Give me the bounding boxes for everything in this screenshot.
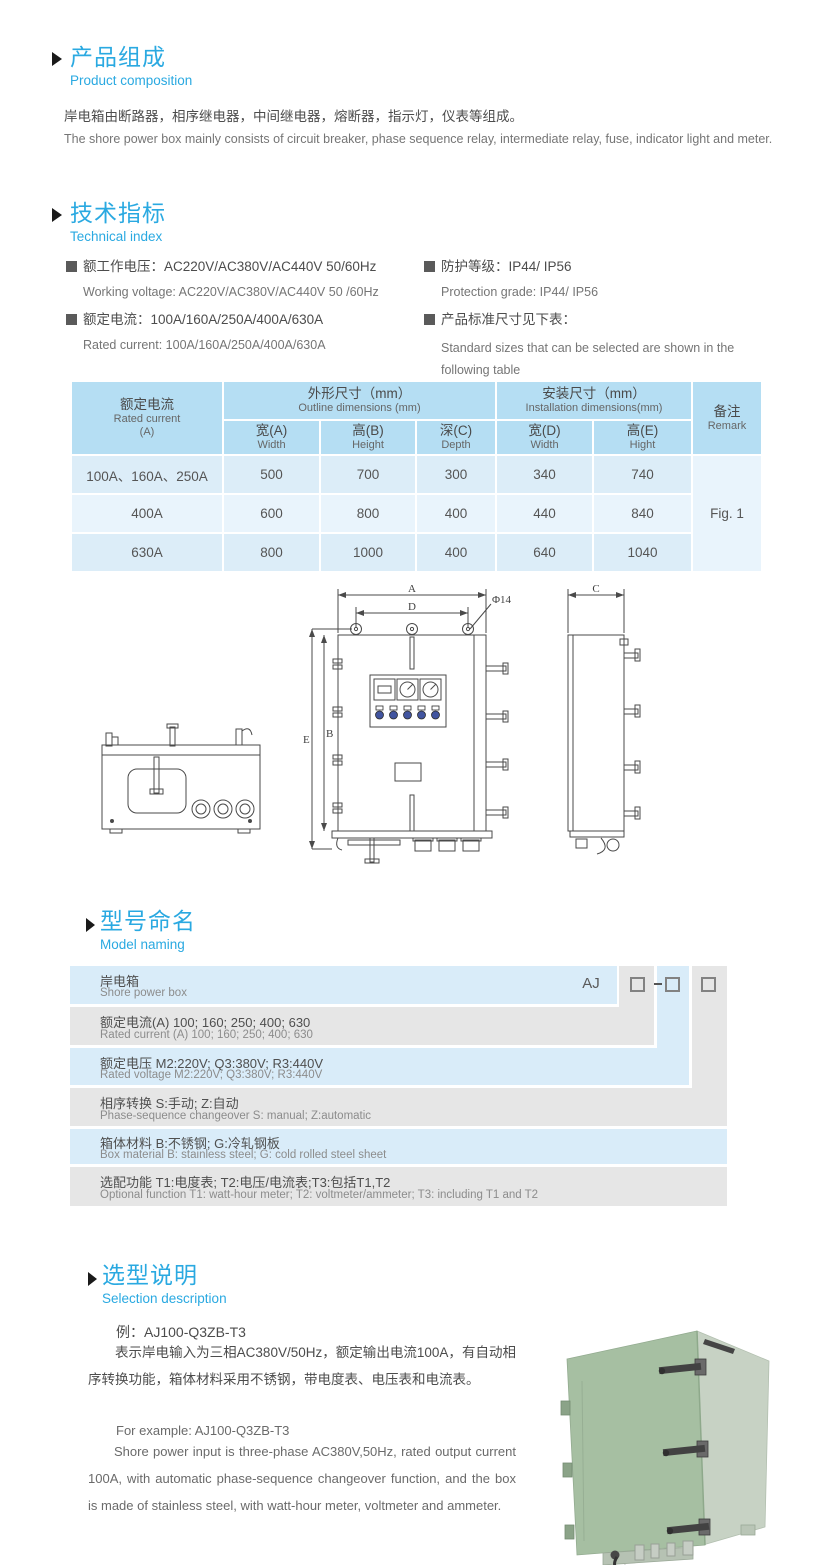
square-bullet-icon [424, 314, 435, 325]
size-table-wrap: 额定电流 Rated current (A) 外形尺寸（mm） Outline … [70, 380, 763, 573]
cell-current: 630A [72, 534, 222, 571]
composition-title-en: Product composition [70, 73, 192, 88]
tech-item: 防护等级：IP44/ IP56 [424, 258, 772, 276]
col-header-depth-c: 深(C)Depth [417, 421, 495, 454]
latch-marks [486, 663, 508, 818]
bottom-view [102, 724, 260, 833]
dim-e-label: E [303, 734, 310, 746]
technical-heading: 技术指标 Technical index [70, 200, 166, 244]
composition-body-en: The shore power box mainly consists of c… [64, 132, 774, 146]
technical-bullets-right: 防护等级：IP44/ IP56 Protection grade: IP44/ … [424, 258, 772, 391]
model-naming-diagram: AJ 岸电箱 Shore power box 额定电流(A) 100; 160;… [70, 966, 730, 1211]
model-row-en: Rated current (A) 100; 160; 250; 400; 63… [100, 1029, 313, 1041]
model-heading: 型号命名 Model naming [100, 908, 196, 952]
col-header-height-b: 高(B)Height [321, 421, 415, 454]
model-code-prefix: AJ [568, 975, 614, 992]
model-row-en: Box material B: stainless steel; G: cold… [100, 1149, 386, 1161]
tech-item: 额工作电压：AC220V/AC380V/AC440V 50/60Hz [66, 258, 416, 276]
square-bullet-icon [66, 314, 77, 325]
cell: 800 [224, 534, 319, 571]
cell: 600 [224, 495, 319, 532]
selection-heading: 选型说明 Selection description [102, 1262, 227, 1306]
cell-current: 400A [72, 495, 222, 532]
model-code-box [630, 977, 645, 992]
technical-bullets-left: 额工作电压：AC220V/AC380V/AC440V 50/60Hz Worki… [66, 258, 416, 364]
square-bullet-icon [66, 261, 77, 272]
cell: 840 [594, 495, 691, 532]
tech-item: 额定电流：100A/160A/250A/400A/630A [66, 311, 416, 329]
dim-d-label: D [408, 601, 416, 613]
cell-remark: Fig. 1 [693, 456, 761, 571]
dim-c-label: C [592, 583, 599, 595]
tech-item-en: Protection grade: IP44/ IP56 [441, 284, 772, 301]
tech-item: 产品标准尺寸见下表： [424, 311, 772, 329]
composition-body-cn: 岸电箱由断路器，相序继电器，中间继电器，熔断器，指示灯，仪表等组成。 [64, 105, 774, 125]
selection-body-en: Shore power input is three-phase AC380V,… [88, 1438, 516, 1519]
col-header-hight-e: 高(E)Hight [594, 421, 691, 454]
model-code-box [665, 977, 680, 992]
model-row-en: Shore power box [100, 987, 187, 999]
tech-item-en: Working voltage: AC220V/AC380V/AC440V 50… [83, 284, 416, 301]
cell: 740 [594, 456, 691, 493]
col-group-outline: 外形尺寸（mm） Outline dimensions (mm) [224, 382, 495, 419]
col-header-current: 额定电流 Rated current (A) [72, 382, 222, 454]
technical-title-en: Technical index [70, 229, 166, 244]
model-row-en: Optional function T1: watt-hour meter; T… [100, 1189, 538, 1201]
cell: 700 [321, 456, 415, 493]
side-view [568, 589, 640, 854]
dimension-labels: A D Φ14 E B C [303, 583, 600, 746]
cell: 800 [321, 495, 415, 532]
selection-example-en: For example: AJ100-Q3ZB-T3 [116, 1423, 289, 1438]
selection-title-en: Selection description [102, 1291, 227, 1306]
size-table: 额定电流 Rated current (A) 外形尺寸（mm） Outline … [70, 380, 763, 573]
table-row: 100A、160A、250A 500 700 300 340 740 Fig. … [72, 456, 761, 493]
meter-panel [370, 675, 446, 727]
hole-label: Φ14 [492, 594, 512, 606]
cell: 640 [497, 534, 592, 571]
cell: 1000 [321, 534, 415, 571]
technical-arrow-icon [52, 208, 62, 227]
col-group-install: 安装尺寸（mm） Installation dimensions(mm) [497, 382, 691, 419]
cell-current: 100A、160A、250A [72, 456, 222, 493]
cell: 400 [417, 534, 495, 571]
cell: 440 [497, 495, 592, 532]
model-arrow-icon [86, 918, 95, 937]
dim-a-label: A [408, 583, 416, 595]
col-header-remark: 备注 Remark [693, 382, 761, 454]
side-latches [624, 649, 640, 819]
cell: 400 [417, 495, 495, 532]
selection-arrow-icon [88, 1272, 97, 1291]
technical-drawing: A D Φ14 E B C [70, 583, 770, 883]
col-header-width-a: 宽(A)Width [224, 421, 319, 454]
tech-item-en: Rated current: 100A/160A/250A/400A/630A [83, 337, 416, 354]
technical-title-cn: 技术指标 [70, 200, 166, 226]
model-title-cn: 型号命名 [100, 908, 196, 934]
cell: 340 [497, 456, 592, 493]
dim-b-label: B [326, 728, 333, 740]
cell: 500 [224, 456, 319, 493]
catalog-page: 产品组成 Product composition 岸电箱由断路器，相序继电器，中… [0, 0, 830, 1568]
model-row-en: Rated voltage M2:220V; Q3:380V; R3:440V [100, 1069, 322, 1081]
composition-title-cn: 产品组成 [70, 44, 192, 70]
model-title-en: Model naming [100, 937, 196, 952]
product-photo [545, 1295, 805, 1565]
selection-title-cn: 选型说明 [102, 1262, 227, 1288]
model-code-dash [654, 983, 662, 985]
table-row: 630A 800 1000 400 640 1040 [72, 534, 761, 571]
front-view [312, 589, 508, 863]
model-row-en: Phase-sequence changeover S: manual; Z:a… [100, 1110, 371, 1122]
cell: 1040 [594, 534, 691, 571]
composition-heading: 产品组成 Product composition [70, 44, 192, 88]
cabinet-side [697, 1331, 769, 1545]
table-row: 400A 600 800 400 440 840 [72, 495, 761, 532]
tech-item-en: Standard sizes that can be selected are … [441, 337, 772, 381]
square-bullet-icon [424, 261, 435, 272]
cell: 300 [417, 456, 495, 493]
col-header-width-d: 宽(D)Width [497, 421, 592, 454]
selection-body-cn: 表示岸电输入为三相AC380V/50Hz，额定输出电流100A，有自动相序转换功… [88, 1339, 516, 1393]
composition-arrow-icon [52, 52, 62, 71]
model-code-box [701, 977, 716, 992]
